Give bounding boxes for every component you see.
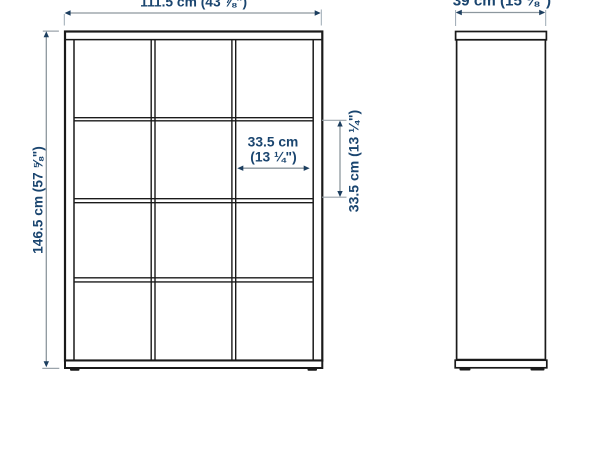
svg-text:33.5 cm: 33.5 cm <box>248 134 299 149</box>
svg-text:111.5 cm (43 ⅞"): 111.5 cm (43 ⅞") <box>140 0 247 9</box>
svg-text:(13 ¼"): (13 ¼") <box>250 150 296 165</box>
svg-text:33.5 cm (13 ¼"): 33.5 cm (13 ¼") <box>346 110 362 212</box>
svg-text:146.5 cm (57 ⅝"): 146.5 cm (57 ⅝") <box>31 146 46 254</box>
svg-text:39 cm (15 ⅜"): 39 cm (15 ⅜") <box>453 0 551 10</box>
